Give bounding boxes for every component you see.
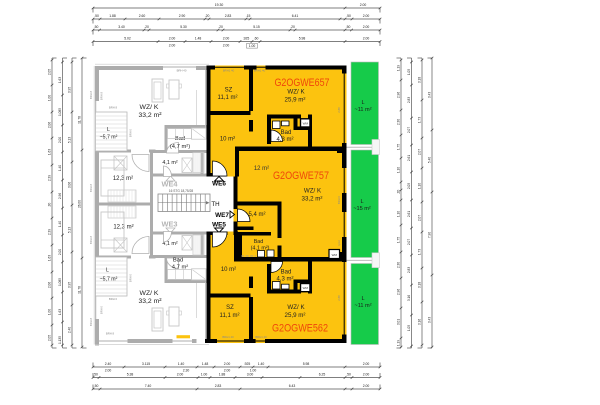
svg-text:5,4 m²: 5,4 m² <box>248 212 265 218</box>
svg-text:12,3 m²: 12,3 m² <box>113 225 133 231</box>
svg-text:L: L <box>106 268 109 274</box>
svg-text:2.05: 2.05 <box>48 69 52 75</box>
svg-text:.20: .20 <box>397 190 401 195</box>
svg-text:.20: .20 <box>205 14 210 18</box>
svg-text:Bad: Bad <box>281 270 292 276</box>
svg-text:2.00: 2.00 <box>105 369 112 373</box>
svg-text:6.43: 6.43 <box>289 384 296 388</box>
svg-text:.50: .50 <box>346 14 351 18</box>
svg-text:.50: .50 <box>93 373 98 377</box>
svg-text:2.06: 2.06 <box>48 282 52 288</box>
svg-text:BRH 0: BRH 0 <box>109 297 118 301</box>
svg-text:3.43: 3.43 <box>428 317 432 323</box>
svg-text:1.88: 1.88 <box>219 373 226 377</box>
svg-text:WE7: WE7 <box>215 212 229 219</box>
svg-text:2.00: 2.00 <box>169 44 176 48</box>
svg-text:.20: .20 <box>144 25 149 29</box>
svg-text:11,1 m²: 11,1 m² <box>218 95 238 101</box>
svg-text:.50: .50 <box>94 25 99 29</box>
svg-text:TH: TH <box>211 201 219 208</box>
svg-text:BRH1 40: BRH1 40 <box>255 335 267 339</box>
svg-text:1.00: 1.00 <box>201 373 208 377</box>
svg-text:2.00: 2.00 <box>363 362 370 366</box>
svg-text:5.13: 5.13 <box>68 137 72 143</box>
svg-text:L: L <box>360 199 363 205</box>
svg-text:1.63: 1.63 <box>48 255 52 261</box>
svg-text:.50: .50 <box>94 384 99 388</box>
svg-text:2.61: 2.61 <box>407 155 411 161</box>
svg-text:2.83: 2.83 <box>407 97 411 103</box>
svg-text:2.00: 2.00 <box>58 137 62 143</box>
svg-text:WM: WM <box>303 122 309 126</box>
svg-text:2.96: 2.96 <box>397 92 401 98</box>
svg-text:6.41: 6.41 <box>292 14 299 18</box>
svg-text:2.07: 2.07 <box>407 127 411 133</box>
svg-text:3.18: 3.18 <box>418 77 422 83</box>
svg-text:4,3 m²: 4,3 m² <box>276 137 293 143</box>
svg-text:2.05: 2.05 <box>407 183 411 189</box>
svg-text:1.085: 1.085 <box>58 108 62 116</box>
svg-text:3.40: 3.40 <box>118 25 125 29</box>
svg-text:2.00: 2.00 <box>360 3 367 7</box>
svg-text:2.00: 2.00 <box>223 44 230 48</box>
svg-text:BRH 8: BRH 8 <box>106 332 115 336</box>
svg-text:(4,1 m²): (4,1 m²) <box>251 246 270 252</box>
svg-text:3.95: 3.95 <box>68 282 72 288</box>
svg-text:1.48: 1.48 <box>202 362 209 366</box>
svg-text:SZ: SZ <box>225 88 233 94</box>
svg-text:2.00: 2.00 <box>224 362 231 366</box>
svg-text:L: L <box>107 127 110 133</box>
svg-text:BRH 8: BRH 8 <box>89 183 93 192</box>
svg-text:2.30: 2.30 <box>397 262 401 268</box>
svg-text:33,2 m²: 33,2 m² <box>138 298 162 305</box>
svg-text:5.98: 5.98 <box>299 37 306 41</box>
svg-text:BRH 0: BRH 0 <box>100 305 104 314</box>
svg-text:1.05: 1.05 <box>407 69 411 75</box>
svg-text:BRH 40: BRH 40 <box>177 69 187 73</box>
svg-text:3.16: 3.16 <box>418 319 422 325</box>
svg-text:WZ/ K: WZ/ K <box>140 290 159 297</box>
svg-text:lyxH: lyxH <box>337 240 341 245</box>
svg-text:BRH 0: BRH 0 <box>129 273 133 282</box>
svg-text:2.00: 2.00 <box>169 37 176 41</box>
svg-text:.20: .20 <box>218 25 223 29</box>
svg-text:WZ/ K: WZ/ K <box>287 304 305 311</box>
svg-text:2.00: 2.00 <box>363 373 370 377</box>
svg-text:.15: .15 <box>246 14 251 18</box>
svg-text:Bad: Bad <box>281 130 292 136</box>
svg-text:2.00: 2.00 <box>223 37 230 41</box>
svg-text:6.25: 6.25 <box>319 373 326 377</box>
svg-text:WZ/ K: WZ/ K <box>287 89 305 96</box>
svg-text:BRH1 40: BRH1 40 <box>223 69 235 73</box>
svg-text:Bad: Bad <box>173 258 183 264</box>
svg-text:~15 m²: ~15 m² <box>353 206 371 212</box>
svg-text:7.90: 7.90 <box>428 232 432 238</box>
svg-text:2.07: 2.07 <box>418 215 422 221</box>
svg-text:Bad: Bad <box>254 239 264 245</box>
svg-text:L: L <box>361 100 364 106</box>
svg-text:1.135: 1.135 <box>58 336 62 344</box>
svg-text:2.07: 2.07 <box>407 239 411 245</box>
svg-text:.925: .925 <box>244 362 251 366</box>
svg-text:3.43: 3.43 <box>428 92 432 98</box>
svg-text:1.88: 1.88 <box>109 14 116 18</box>
svg-text:5.02: 5.02 <box>124 37 131 41</box>
svg-text:5.15: 5.15 <box>253 25 260 29</box>
svg-text:1.10: 1.10 <box>418 183 422 189</box>
svg-text:5.30: 5.30 <box>180 25 187 29</box>
svg-text:BRH 8: BRH 8 <box>109 106 118 110</box>
svg-text:1.19: 1.19 <box>397 65 401 71</box>
svg-text:BRH 8: BRH 8 <box>100 91 104 100</box>
svg-text:.50: .50 <box>346 25 351 29</box>
svg-text:~11 m²: ~11 m² <box>354 107 371 113</box>
svg-text:3.06: 3.06 <box>68 182 72 188</box>
svg-text:2.00: 2.00 <box>363 25 370 29</box>
svg-text:.20: .20 <box>290 25 295 29</box>
svg-text:2.07: 2.07 <box>418 149 422 155</box>
svg-text:11.78: 11.78 <box>78 286 82 294</box>
svg-text:BRH 8: BRH 8 <box>89 317 93 326</box>
svg-text:12,3 m²: 12,3 m² <box>113 176 133 182</box>
svg-text:(4,7 m²): (4,7 m²) <box>170 144 190 150</box>
svg-text:1.19: 1.19 <box>397 340 401 346</box>
svg-text:2.00: 2.00 <box>58 249 62 255</box>
svg-text:1.10: 1.10 <box>397 167 401 173</box>
svg-text:BRH 0: BRH 0 <box>337 195 341 204</box>
svg-text:L: L <box>361 296 364 302</box>
svg-text:~5,7 m²: ~5,7 m² <box>100 135 118 141</box>
svg-text:.50: .50 <box>94 14 99 18</box>
svg-text:5.13: 5.13 <box>68 227 72 233</box>
svg-text:G2OGWE562: G2OGWE562 <box>272 322 328 334</box>
svg-text:WE5: WE5 <box>212 222 226 229</box>
svg-text:2.83: 2.83 <box>215 384 222 388</box>
svg-text:BRH1 40: BRH1 40 <box>254 69 266 73</box>
svg-text:1.40: 1.40 <box>58 165 62 171</box>
svg-text:1.40: 1.40 <box>258 362 265 366</box>
svg-text:1.75: 1.75 <box>397 237 401 243</box>
svg-text:BRH 0: BRH 0 <box>129 128 133 137</box>
svg-text:10 m²: 10 m² <box>221 267 236 273</box>
svg-text:.50: .50 <box>346 373 351 377</box>
svg-text:33,2 m²: 33,2 m² <box>302 196 323 203</box>
svg-text:~11 m²: ~11 m² <box>354 303 371 309</box>
svg-text:2.88: 2.88 <box>337 107 341 113</box>
svg-text:2.40: 2.40 <box>105 362 112 366</box>
svg-text:2.96: 2.96 <box>397 289 401 295</box>
svg-text:WE3: WE3 <box>161 220 177 229</box>
svg-text:1.40: 1.40 <box>58 221 62 227</box>
svg-text:G2OGWE657: G2OGWE657 <box>275 77 330 89</box>
svg-text:5.38: 5.38 <box>127 373 134 377</box>
svg-text:4,3 m²: 4,3 m² <box>276 276 293 282</box>
svg-text:3.01: 3.01 <box>397 319 401 325</box>
svg-text:BRH1 40: BRH1 40 <box>222 335 234 339</box>
svg-text:1.48: 1.48 <box>195 37 202 41</box>
svg-text:2.88: 2.88 <box>337 295 341 301</box>
svg-text:1.63: 1.63 <box>58 309 62 315</box>
svg-text:3.95: 3.95 <box>68 87 72 93</box>
svg-text:1.00: 1.00 <box>48 309 52 315</box>
svg-text:WM: WM <box>303 286 309 290</box>
svg-text:2.00: 2.00 <box>363 14 370 18</box>
svg-text:BRH 8: BRH 8 <box>89 90 93 99</box>
svg-text:1.10: 1.10 <box>397 211 401 217</box>
svg-text:1.40: 1.40 <box>178 362 185 366</box>
svg-text:WZ/ K: WZ/ K <box>140 104 159 111</box>
svg-text:1.75: 1.75 <box>397 144 401 150</box>
svg-text:.30: .30 <box>48 203 52 208</box>
svg-text:3.00: 3.00 <box>247 373 254 377</box>
svg-text:2.96: 2.96 <box>58 193 62 199</box>
svg-text:12 m²: 12 m² <box>254 166 269 172</box>
svg-text:1.73: 1.73 <box>418 117 422 123</box>
svg-text:5.98: 5.98 <box>303 362 310 366</box>
svg-text:16 STG 18,75/28: 16 STG 18,75/28 <box>169 189 194 193</box>
svg-text:1.00: 1.00 <box>249 44 256 48</box>
svg-text:SZ: SZ <box>226 305 234 311</box>
svg-text:7.40: 7.40 <box>145 384 152 388</box>
svg-text:5.40: 5.40 <box>428 157 432 163</box>
svg-text:2.61: 2.61 <box>407 211 411 217</box>
svg-text:11,1 m²: 11,1 m² <box>220 313 240 319</box>
svg-text:2.40: 2.40 <box>68 327 72 333</box>
svg-text:33,2 m²: 33,2 m² <box>138 112 162 119</box>
svg-text:3.18: 3.18 <box>418 282 422 288</box>
svg-text:1.63: 1.63 <box>48 149 52 155</box>
svg-text:4,1 m²: 4,1 m² <box>162 160 177 166</box>
svg-text:WE6: WE6 <box>212 181 226 188</box>
svg-text:1.05: 1.05 <box>407 325 411 331</box>
svg-text:1.63: 1.63 <box>58 77 62 83</box>
svg-text:2.00: 2.00 <box>363 37 370 41</box>
svg-text:2.83: 2.83 <box>225 14 232 18</box>
svg-text:2.06: 2.06 <box>48 122 52 128</box>
svg-text:.925: .925 <box>243 37 250 41</box>
svg-text:2.05: 2.05 <box>48 335 52 341</box>
svg-text:3.16: 3.16 <box>407 295 411 301</box>
svg-text:2.39: 2.39 <box>48 175 52 181</box>
svg-text:2.83: 2.83 <box>407 267 411 273</box>
svg-text:11.78: 11.78 <box>78 116 82 124</box>
svg-text:3.115: 3.115 <box>142 362 150 366</box>
svg-text:10 m²: 10 m² <box>220 137 235 143</box>
svg-text:1.73: 1.73 <box>418 249 422 255</box>
svg-text:.60: .60 <box>254 37 259 41</box>
svg-text:2.30: 2.30 <box>397 119 401 125</box>
svg-text:BRH 8: BRH 8 <box>89 235 93 244</box>
svg-text:1.00: 1.00 <box>48 95 52 101</box>
svg-text:WZ/ K: WZ/ K <box>304 188 322 195</box>
svg-text:2.60: 2.60 <box>139 14 146 18</box>
svg-text:2.39: 2.39 <box>48 229 52 235</box>
svg-text:25,9 m²: 25,9 m² <box>285 97 306 104</box>
svg-text:2.00: 2.00 <box>363 384 370 388</box>
svg-text:2.90: 2.90 <box>179 14 186 18</box>
svg-text:1.085: 1.085 <box>58 278 62 286</box>
svg-text:WM: WM <box>332 253 338 257</box>
svg-text:25,9 m²: 25,9 m² <box>285 312 306 319</box>
svg-text:2.00: 2.00 <box>177 373 184 377</box>
svg-text:19.30: 19.30 <box>215 3 224 7</box>
svg-text:26.00: 26.00 <box>78 200 82 208</box>
svg-text:~5,7 m²: ~5,7 m² <box>100 277 118 283</box>
svg-text:2.30: 2.30 <box>183 369 190 373</box>
svg-text:G2OGWE757: G2OGWE757 <box>273 170 329 182</box>
